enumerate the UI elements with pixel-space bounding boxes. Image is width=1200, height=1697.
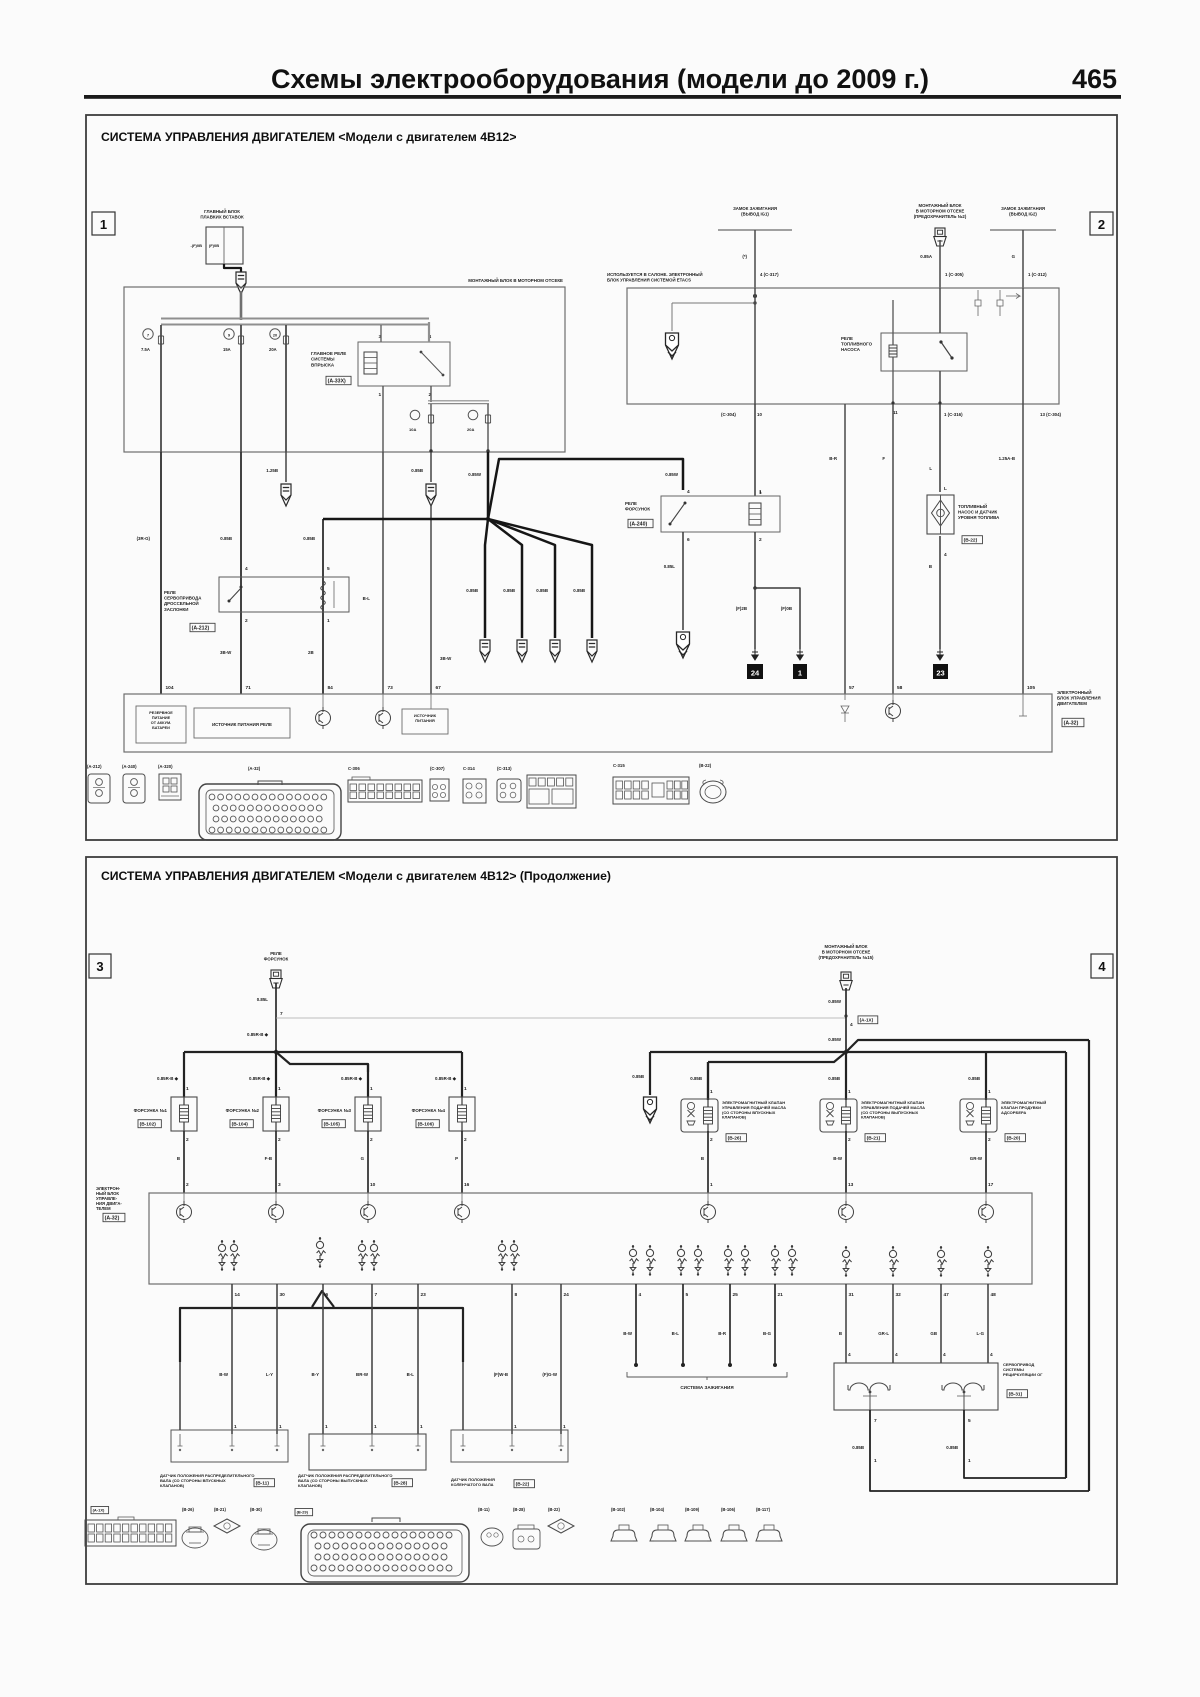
svg-text:20: 20 xyxy=(273,334,277,338)
svg-text:(A-1X): (A-1X) xyxy=(860,1017,874,1022)
svg-text:ФОРСУНОК: ФОРСУНОК xyxy=(625,507,650,512)
svg-text:1 (C-305): 1 (C-305) xyxy=(945,272,964,277)
svg-text:(A-32): (A-32) xyxy=(105,1215,120,1221)
svg-text:L-G: L-G xyxy=(976,1331,984,1336)
svg-text:71: 71 xyxy=(246,685,252,691)
svg-text:5: 5 xyxy=(327,566,330,572)
svg-text:P: P xyxy=(455,1156,458,1161)
svg-text:(B-26): (B-26) xyxy=(182,1507,194,1512)
svg-text:0.85W: 0.85W xyxy=(828,1037,842,1042)
svg-text:2: 2 xyxy=(370,1137,373,1143)
svg-text:ПЛАВКИХ ВСТАВОК: ПЛАВКИХ ВСТАВОК xyxy=(200,215,244,220)
svg-text:Схемы электрооборудования (мод: Схемы электрооборудования (модели до 200… xyxy=(271,64,929,94)
svg-text:БАТАРЕИ: БАТАРЕИ xyxy=(152,726,170,730)
svg-text:2: 2 xyxy=(278,1137,281,1143)
svg-text:0.85R-B ◆: 0.85R-B ◆ xyxy=(341,1076,363,1081)
svg-text:6: 6 xyxy=(326,1292,329,1298)
svg-text:(F)0B: (F)0B xyxy=(209,243,219,248)
svg-text:17: 17 xyxy=(988,1182,994,1188)
svg-text:(B-22): (B-22) xyxy=(516,1481,530,1487)
svg-text:ФОРСУНКА №3: ФОРСУНКА №3 xyxy=(318,1108,352,1113)
svg-text:2: 2 xyxy=(759,537,762,543)
svg-text:ВПРЫСКА: ВПРЫСКА xyxy=(311,362,335,367)
svg-text:(A-33X): (A-33X) xyxy=(328,378,346,384)
svg-text:(A-32): (A-32) xyxy=(248,766,261,771)
svg-text:0.85A: 0.85A xyxy=(920,254,933,259)
svg-text:G: G xyxy=(1012,254,1016,259)
svg-text:РЕЛЕ: РЕЛЕ xyxy=(164,590,176,595)
svg-text:GR-L: GR-L xyxy=(878,1331,889,1336)
svg-text:(F)W-B: (F)W-B xyxy=(494,1372,508,1377)
svg-text:84: 84 xyxy=(328,685,334,691)
svg-text:4: 4 xyxy=(1098,959,1106,974)
svg-text:ТОПЛИВНОГО: ТОПЛИВНОГО xyxy=(841,342,873,347)
svg-text:В МОТОРНОМ ОТСЕКЕ: В МОТОРНОМ ОТСЕКЕ xyxy=(822,950,871,955)
svg-text:2: 2 xyxy=(186,1182,189,1188)
svg-text:1: 1 xyxy=(278,1086,281,1092)
svg-text:4: 4 xyxy=(943,1352,946,1358)
svg-text:1: 1 xyxy=(370,1086,373,1092)
svg-text:15A: 15A xyxy=(223,347,231,352)
svg-text:НАСОСА: НАСОСА xyxy=(841,347,861,352)
svg-text:G: G xyxy=(361,1156,365,1161)
svg-text:0.85B: 0.85B xyxy=(411,468,423,473)
svg-text:1: 1 xyxy=(234,1424,237,1430)
svg-text:1 (C-316): 1 (C-316) xyxy=(944,412,963,417)
svg-text:ПИТАНИЕ: ПИТАНИЕ xyxy=(152,716,171,720)
svg-text:ЭЛЕКТРОННЫЙ: ЭЛЕКТРОННЫЙ xyxy=(1057,690,1092,695)
svg-text:РЕЛЕ: РЕЛЕ xyxy=(841,336,853,341)
svg-text:2: 2 xyxy=(186,1137,189,1143)
svg-text:СИСТЕМА ЗАЖИГАНИЯ: СИСТЕМА ЗАЖИГАНИЯ xyxy=(680,1385,733,1390)
svg-text:2: 2 xyxy=(1098,217,1105,232)
svg-text:3B-W: 3B-W xyxy=(440,656,452,661)
svg-text:4: 4 xyxy=(990,1352,993,1358)
svg-text:СИСТЕМА УПРАВЛЕНИЯ ДВИГАТЕЛЕМ: СИСТЕМА УПРАВЛЕНИЯ ДВИГАТЕЛЕМ <Модели с … xyxy=(101,130,516,144)
svg-text:ОТ АККУМ.: ОТ АККУМ. xyxy=(151,721,171,725)
svg-text:1: 1 xyxy=(374,1424,377,1430)
svg-text:1: 1 xyxy=(464,1086,467,1092)
svg-text:4: 4 xyxy=(850,1022,853,1028)
svg-text:РЕЦИРКУЛЯЦИИ ОГ: РЕЦИРКУЛЯЦИИ ОГ xyxy=(1003,1372,1043,1377)
svg-text:32: 32 xyxy=(896,1292,902,1298)
svg-text:C-306: C-306 xyxy=(348,766,360,771)
svg-text:48: 48 xyxy=(991,1292,997,1298)
svg-text:(A-32): (A-32) xyxy=(1064,720,1079,726)
svg-text:11: 11 xyxy=(893,410,898,415)
svg-text:B-L: B-L xyxy=(672,1331,680,1336)
svg-text:13 (C-304): 13 (C-304) xyxy=(1040,412,1062,417)
svg-text:1: 1 xyxy=(798,669,802,678)
svg-text:РЕЗЕРВНОЕ: РЕЗЕРВНОЕ xyxy=(149,711,173,715)
svg-text:5: 5 xyxy=(968,1418,971,1424)
svg-text:4 (C-317): 4 (C-317) xyxy=(760,272,779,277)
svg-text:(B-29): (B-29) xyxy=(297,1509,309,1514)
svg-text:4: 4 xyxy=(895,1352,898,1358)
svg-text:ЗАМОК ЗАЖИГАНИЯ: ЗАМОК ЗАЖИГАНИЯ xyxy=(1001,206,1045,211)
svg-text:8: 8 xyxy=(515,1292,518,1298)
svg-text:1: 1 xyxy=(848,1089,851,1095)
svg-text:1 (C-312): 1 (C-312) xyxy=(1028,272,1047,277)
svg-text:(3R-G): (3R-G) xyxy=(137,536,151,541)
svg-text:L: L xyxy=(929,466,932,471)
svg-text:BR-W: BR-W xyxy=(356,1372,369,1377)
svg-text:0.85R-B ◆: 0.85R-B ◆ xyxy=(247,1032,269,1037)
svg-text:1: 1 xyxy=(379,392,382,398)
svg-text:4: 4 xyxy=(944,552,947,558)
svg-text:ТЕЛЕМ: ТЕЛЕМ xyxy=(96,1206,111,1211)
svg-text:(F)2B: (F)2B xyxy=(736,606,747,611)
svg-text:F-B: F-B xyxy=(265,1156,272,1161)
svg-text:РЕЛЕ: РЕЛЕ xyxy=(270,951,282,956)
svg-text:В МОТОРНОМ ОТСЕКЕ: В МОТОРНОМ ОТСЕКЕ xyxy=(916,209,965,214)
svg-text:20A: 20A xyxy=(467,427,474,432)
svg-text:(B-21): (B-21) xyxy=(214,1507,226,1512)
svg-text:B: B xyxy=(177,1156,180,1161)
svg-text:0.85W: 0.85W xyxy=(468,472,482,477)
svg-text:АДСОРБЕРА: АДСОРБЕРА xyxy=(1001,1110,1026,1115)
svg-text:B-W: B-W xyxy=(623,1331,633,1336)
svg-text:1: 1 xyxy=(874,1458,877,1464)
svg-text:(F)0B: (F)0B xyxy=(781,606,792,611)
svg-text:10: 10 xyxy=(370,1182,376,1188)
svg-text:(B-109): (B-109) xyxy=(685,1507,700,1512)
svg-text:0.85B: 0.85B xyxy=(946,1445,958,1450)
svg-text:7: 7 xyxy=(280,1011,283,1017)
svg-text:ДРОССЕЛЬНОЙ: ДРОССЕЛЬНОЙ xyxy=(164,601,199,606)
svg-text:0.85B: 0.85B xyxy=(690,1076,702,1081)
svg-text:0.85B: 0.85B xyxy=(503,588,515,593)
svg-text:ИСТОЧНИК ПИТАНИЯ РЕЛЕ: ИСТОЧНИК ПИТАНИЯ РЕЛЕ xyxy=(212,722,272,727)
svg-text:1: 1 xyxy=(420,1424,423,1430)
svg-text:4: 4 xyxy=(639,1292,642,1298)
svg-text:(*): (*) xyxy=(742,254,747,259)
svg-text:КЛАПАНОВ): КЛАПАНОВ) xyxy=(722,1115,747,1120)
svg-text:B-G: B-G xyxy=(763,1331,772,1336)
svg-text:10: 10 xyxy=(757,412,762,417)
svg-text:16: 16 xyxy=(464,1182,470,1188)
svg-text:(ВЫВОД IG2): (ВЫВОД IG2) xyxy=(1009,212,1037,217)
svg-text:67: 67 xyxy=(436,685,442,691)
svg-text:РЕЛЕ: РЕЛЕ xyxy=(625,501,637,506)
svg-text:L-Y: L-Y xyxy=(266,1372,273,1377)
svg-text:(ПРЕДОХРАНИТЕЛЬ №2): (ПРЕДОХРАНИТЕЛЬ №2) xyxy=(914,214,967,219)
svg-text:2B: 2B xyxy=(308,650,314,655)
svg-text:47: 47 xyxy=(944,1292,950,1298)
svg-text:(A-320): (A-320) xyxy=(158,764,173,769)
svg-text:B-L: B-L xyxy=(363,596,371,601)
svg-text:1: 1 xyxy=(968,1458,971,1464)
svg-text:ЗАМОК ЗАЖИГАНИЯ: ЗАМОК ЗАЖИГАНИЯ xyxy=(733,206,777,211)
svg-text:5: 5 xyxy=(686,1292,689,1298)
svg-text:20A: 20A xyxy=(269,347,277,352)
svg-text:(F)G-W: (F)G-W xyxy=(542,1372,557,1377)
svg-text:ФОРСУНОК: ФОРСУНОК xyxy=(264,957,289,962)
svg-text:КЛАПАНОВ): КЛАПАНОВ) xyxy=(298,1483,323,1488)
svg-text:0.85B: 0.85B xyxy=(573,588,585,593)
svg-text:23: 23 xyxy=(936,669,944,678)
svg-text:(A-240): (A-240) xyxy=(630,521,648,527)
svg-text:B-Y: B-Y xyxy=(311,1372,319,1377)
svg-text:6: 6 xyxy=(687,537,690,543)
svg-text:1.25B: 1.25B xyxy=(266,468,278,473)
svg-text:4: 4 xyxy=(687,489,690,495)
svg-text:0.85R-B ◆: 0.85R-B ◆ xyxy=(157,1076,179,1081)
svg-text:2: 2 xyxy=(988,1137,991,1143)
svg-text:7: 7 xyxy=(874,1418,877,1424)
svg-text:МОНТАЖНЫЙ БЛОК: МОНТАЖНЫЙ БЛОК xyxy=(919,203,962,208)
svg-text:4: 4 xyxy=(245,566,248,572)
svg-text:УРОВНЯ ТОПЛИВА: УРОВНЯ ТОПЛИВА xyxy=(958,515,1000,520)
svg-text:0.85L: 0.85L xyxy=(257,997,269,1002)
svg-text:C-315: C-315 xyxy=(613,763,625,768)
svg-text:0.85B: 0.85B xyxy=(968,1076,980,1081)
svg-text:1: 1 xyxy=(325,1424,328,1430)
svg-text:СИСТЕМЫ: СИСТЕМЫ xyxy=(311,357,335,362)
svg-text:ДВИГАТЕЛЕМ: ДВИГАТЕЛЕМ xyxy=(1057,701,1087,706)
svg-text:ФОРСУНКА №1: ФОРСУНКА №1 xyxy=(134,1108,168,1113)
svg-text:B: B xyxy=(839,1331,842,1336)
svg-text:(B-104): (B-104) xyxy=(232,1121,249,1127)
svg-text:B: B xyxy=(701,1156,704,1161)
svg-text:(A-1X): (A-1X) xyxy=(93,1507,105,1512)
svg-text:21: 21 xyxy=(778,1292,784,1298)
svg-text:0.85B: 0.85B xyxy=(536,588,548,593)
svg-text:0.85B: 0.85B xyxy=(632,1074,644,1079)
svg-text:1: 1 xyxy=(563,1424,566,1430)
svg-text:(B-30): (B-30) xyxy=(250,1507,262,1512)
svg-text:0.85B: 0.85B xyxy=(852,1445,864,1450)
svg-text:3B-W: 3B-W xyxy=(220,650,232,655)
svg-text:СЕРВОПРИВОДА: СЕРВОПРИВОДА xyxy=(164,596,202,601)
svg-text:(A-240): (A-240) xyxy=(122,764,137,769)
svg-text:(B-20): (B-20) xyxy=(1007,1135,1021,1141)
svg-text:(B-22): (B-22) xyxy=(699,763,712,768)
svg-text:(A-212): (A-212) xyxy=(87,764,102,769)
svg-text:465: 465 xyxy=(1072,64,1117,94)
svg-text:1: 1 xyxy=(327,618,330,624)
svg-text:(B-105): (B-105) xyxy=(324,1121,341,1127)
svg-text:(B-117): (B-117) xyxy=(756,1507,771,1512)
svg-text:B-R: B-R xyxy=(718,1331,727,1336)
svg-text:(C-307): (C-307) xyxy=(430,766,445,771)
svg-text:73: 73 xyxy=(388,685,394,691)
svg-text:(B-106): (B-106) xyxy=(721,1507,736,1512)
svg-text:(B-11): (B-11) xyxy=(478,1507,490,1512)
svg-text:0.85B: 0.85B xyxy=(303,536,315,541)
svg-text:0.85B: 0.85B xyxy=(466,588,478,593)
svg-text:КОЛЕНЧАТОГО ВАЛА: КОЛЕНЧАТОГО ВАЛА xyxy=(451,1482,494,1487)
svg-text:1: 1 xyxy=(514,1424,517,1430)
svg-text:3: 3 xyxy=(96,959,103,974)
svg-text:14: 14 xyxy=(235,1292,241,1298)
svg-text:(B-22): (B-22) xyxy=(964,537,978,543)
svg-text:C-314: C-314 xyxy=(463,766,475,771)
svg-text:2: 2 xyxy=(245,618,248,624)
svg-text:ФОРСУНКА №4: ФОРСУНКА №4 xyxy=(412,1108,446,1113)
svg-text:10A: 10A xyxy=(409,427,416,432)
svg-text:F: F xyxy=(882,456,885,461)
svg-text:24: 24 xyxy=(751,669,760,678)
svg-text:БЛОК УПРАВЛЕНИЯ СИСТЕМОЙ ETACS: БЛОК УПРАВЛЕНИЯ СИСТЕМОЙ ETACS xyxy=(607,278,691,283)
svg-text:КЛАПАНОВ): КЛАПАНОВ) xyxy=(861,1115,886,1120)
svg-text:58: 58 xyxy=(897,685,903,691)
svg-text:GR-W: GR-W xyxy=(970,1156,983,1161)
svg-text:0.85W: 0.85W xyxy=(665,472,679,477)
svg-text:1: 1 xyxy=(186,1086,189,1092)
svg-text:(ВЫВОД IG1): (ВЫВОД IG1) xyxy=(741,212,769,217)
svg-text:L: L xyxy=(944,486,947,492)
svg-text:(B-102): (B-102) xyxy=(611,1507,626,1512)
svg-text:(B-22): (B-22) xyxy=(548,1507,560,1512)
svg-text:104: 104 xyxy=(166,685,174,691)
svg-text:GB: GB xyxy=(930,1331,937,1336)
svg-text:2: 2 xyxy=(710,1137,713,1143)
svg-text:(B-28): (B-28) xyxy=(394,1480,408,1486)
svg-text:30: 30 xyxy=(280,1292,286,1298)
svg-text:НАСОС И ДАТЧИК: НАСОС И ДАТЧИК xyxy=(958,510,997,515)
svg-text:ИСПОЛЬЗУЕТСЯ В САЛОНЕ. ЭЛЕКТРО: ИСПОЛЬЗУЕТСЯ В САЛОНЕ. ЭЛЕКТРОННЫЙ xyxy=(607,272,703,277)
svg-text:B-L: B-L xyxy=(407,1372,415,1377)
svg-text:7.5A: 7.5A xyxy=(141,347,150,352)
svg-text:31: 31 xyxy=(849,1292,855,1298)
svg-text:(B-102): (B-102) xyxy=(140,1121,157,1127)
svg-text:0.85L: 0.85L xyxy=(664,564,676,569)
svg-text:КЛАПАНОВ): КЛАПАНОВ) xyxy=(160,1483,185,1488)
svg-text:0.85W: 0.85W xyxy=(828,999,842,1004)
svg-text:13: 13 xyxy=(848,1182,854,1188)
svg-text:(B-11): (B-11) xyxy=(256,1480,270,1486)
svg-text:1: 1 xyxy=(759,489,762,495)
svg-text:(A-212): (A-212) xyxy=(192,625,210,631)
svg-text:(B-104): (B-104) xyxy=(650,1507,665,1512)
svg-text:МОНТАЖНЫЙ БЛОК В МОТОРНОМ ОТСЕ: МОНТАЖНЫЙ БЛОК В МОТОРНОМ ОТСЕКЕ xyxy=(468,278,563,283)
svg-text:0.85R-B ◆: 0.85R-B ◆ xyxy=(435,1076,457,1081)
svg-text:7: 7 xyxy=(375,1292,378,1298)
svg-text:(B-28): (B-28) xyxy=(513,1507,525,1512)
svg-text:0.85B: 0.85B xyxy=(828,1076,840,1081)
svg-text:(B-26): (B-26) xyxy=(728,1135,742,1141)
svg-text:23: 23 xyxy=(421,1292,427,1298)
svg-text:0.85R-B ◆: 0.85R-B ◆ xyxy=(249,1076,271,1081)
svg-text:ЗАСЛОНКИ: ЗАСЛОНКИ xyxy=(164,607,188,612)
svg-text:1: 1 xyxy=(710,1089,713,1095)
svg-text:(B-31): (B-31) xyxy=(1009,1391,1023,1397)
svg-text:4: 4 xyxy=(848,1352,851,1358)
svg-text:(B-21): (B-21) xyxy=(867,1135,881,1141)
svg-text:(C-304): (C-304) xyxy=(721,412,736,417)
svg-text:ТОПЛИВНЫЙ: ТОПЛИВНЫЙ xyxy=(958,504,987,509)
svg-text:-(F)0B: -(F)0B xyxy=(190,243,202,248)
svg-text:1: 1 xyxy=(710,1182,713,1188)
svg-text:1: 1 xyxy=(100,217,107,232)
svg-text:57: 57 xyxy=(849,685,855,691)
svg-text:1.25A-B: 1.25A-B xyxy=(999,456,1015,461)
svg-text:2: 2 xyxy=(464,1137,467,1143)
svg-text:БЛОК УПРАВЛЕНИЯ: БЛОК УПРАВЛЕНИЯ xyxy=(1057,696,1101,701)
svg-text:105: 105 xyxy=(1027,685,1035,691)
svg-text:B-W: B-W xyxy=(219,1372,229,1377)
svg-text:(ПРЕДОХРАНИТЕЛЬ №15): (ПРЕДОХРАНИТЕЛЬ №15) xyxy=(819,955,874,960)
svg-text:B-R: B-R xyxy=(829,456,838,461)
svg-text:(C-313): (C-313) xyxy=(497,766,512,771)
svg-text:0.85B: 0.85B xyxy=(220,536,232,541)
svg-text:B-W: B-W xyxy=(833,1156,843,1161)
svg-text:3: 3 xyxy=(278,1182,281,1188)
svg-text:1: 1 xyxy=(279,1424,282,1430)
svg-text:B: B xyxy=(929,564,932,569)
svg-text:МОНТАЖНЫЙ БЛОК: МОНТАЖНЫЙ БЛОК xyxy=(825,944,868,949)
svg-text:ФОРСУНКА №2: ФОРСУНКА №2 xyxy=(226,1108,260,1113)
svg-text:(B-106): (B-106) xyxy=(418,1121,435,1127)
svg-text:ГЛАВНЫЙ БЛОК: ГЛАВНЫЙ БЛОК xyxy=(204,209,240,214)
svg-text:24: 24 xyxy=(564,1292,570,1298)
svg-text:25: 25 xyxy=(733,1292,739,1298)
svg-text:2: 2 xyxy=(848,1137,851,1143)
svg-text:СИСТЕМА УПРАВЛЕНИЯ ДВИГАТЕЛЕМ: СИСТЕМА УПРАВЛЕНИЯ ДВИГАТЕЛЕМ <Модели с … xyxy=(101,869,611,883)
svg-text:ГЛАВНОЕ РЕЛЕ: ГЛАВНОЕ РЕЛЕ xyxy=(311,351,346,356)
svg-text:ПИТАНИЯ: ПИТАНИЯ xyxy=(415,718,435,723)
svg-text:1: 1 xyxy=(988,1089,991,1095)
